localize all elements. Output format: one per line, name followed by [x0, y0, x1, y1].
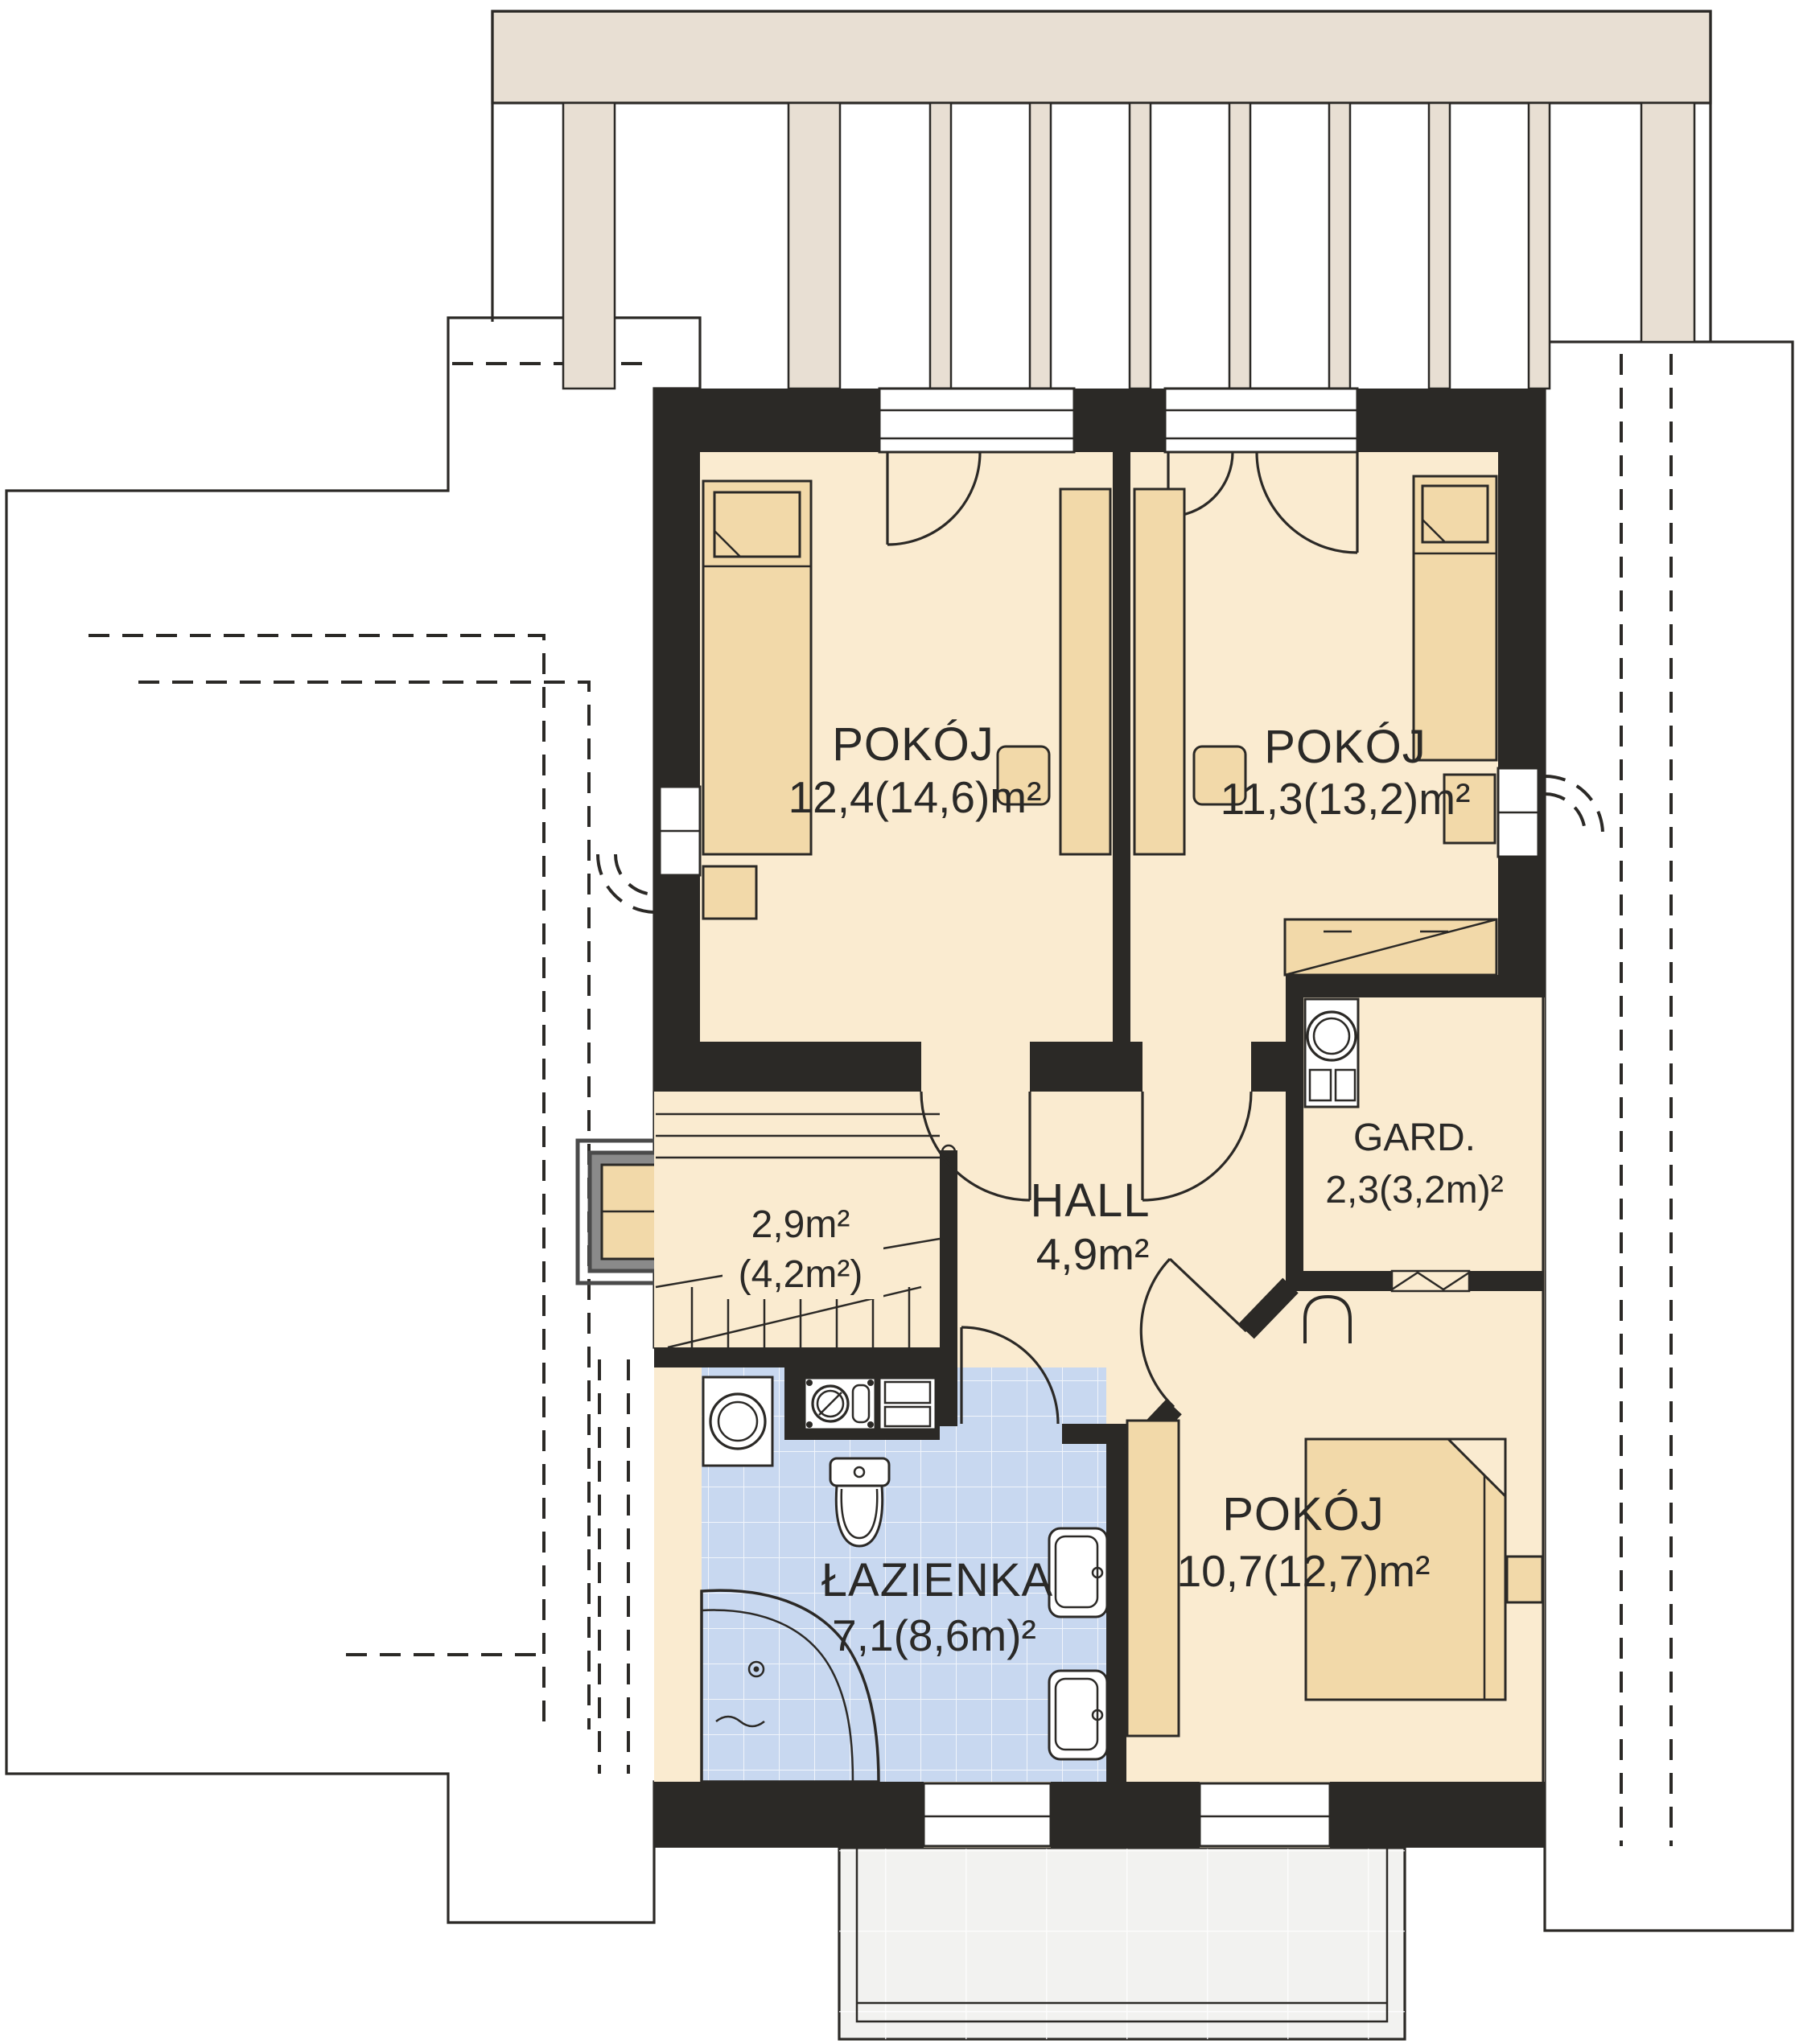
- cabinet-unit: [879, 1378, 936, 1429]
- balcony-railing-slats: [563, 103, 1694, 389]
- bathroom-area: 7,1(8,6m)²: [832, 1610, 1036, 1660]
- roof-left: [6, 318, 700, 1923]
- washing-machine: [703, 1377, 772, 1466]
- roof-right: [1545, 342, 1793, 1931]
- wardrobe-area: 2,3(3,2m)²: [1325, 1169, 1503, 1211]
- nightstand-room1: [703, 866, 756, 919]
- stairs-area: 2,9m²: [751, 1203, 850, 1246]
- vent-unit: [805, 1378, 875, 1429]
- room3-area: 10,7(12,7)m²: [1177, 1546, 1431, 1596]
- stairs-area-secondary: (4,2m²): [739, 1253, 863, 1296]
- room1-area: 12,4(14,6)m²: [788, 772, 1042, 822]
- balcony: [492, 11, 1711, 389]
- room2-area: 11,3(13,2)m²: [1221, 774, 1471, 824]
- bed-room2: [1414, 476, 1497, 760]
- cabinet-room3: [1127, 1421, 1179, 1736]
- room2-name: POKÓJ: [1264, 721, 1427, 773]
- sink-2: [1049, 1671, 1107, 1759]
- hall-name: HALL: [1030, 1174, 1150, 1227]
- bathroom-name: ŁAZIENKA: [821, 1554, 1053, 1606]
- desk-room1: [1060, 489, 1110, 854]
- water-heater: [1305, 999, 1358, 1107]
- hall-area: 4,9m²: [1036, 1229, 1150, 1279]
- floor-plan-drawing: POKÓJ 12,4(14,6)m² POKÓJ 11,3(13,2)m² PO…: [0, 0, 1795, 2044]
- knee-wall-window-left: [660, 787, 700, 875]
- floor-plan: POKÓJ 12,4(14,6)m² POKÓJ 11,3(13,2)m² PO…: [0, 0, 1795, 2044]
- sink-1: [1049, 1528, 1107, 1617]
- room1-name: POKÓJ: [832, 718, 994, 771]
- bottom-window-room3: [1200, 1783, 1330, 1846]
- desk-room2: [1134, 489, 1184, 854]
- terrace: [839, 1848, 1405, 2039]
- wardrobe-name: GARD.: [1353, 1117, 1476, 1159]
- wardrobe-room2: [1285, 919, 1497, 975]
- room3-name: POKÓJ: [1222, 1488, 1385, 1540]
- bottom-window-bathroom: [924, 1783, 1051, 1846]
- knee-wall-window-right: [1498, 768, 1538, 857]
- nightstand-room3: [1507, 1557, 1542, 1602]
